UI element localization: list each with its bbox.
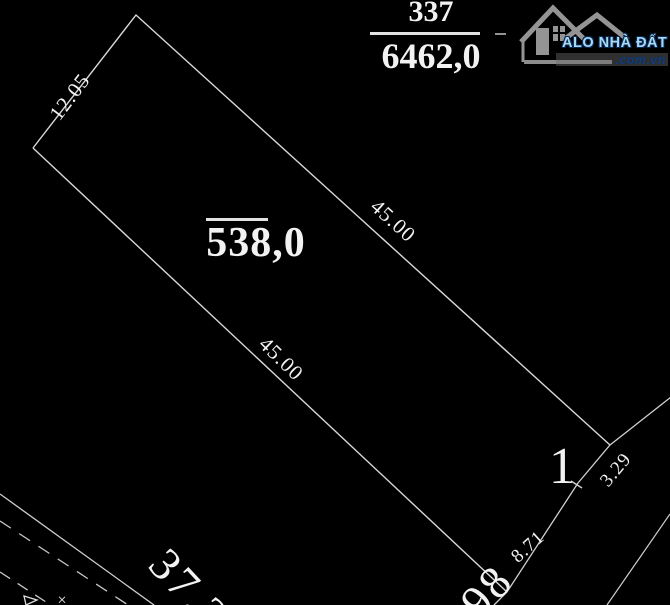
cadastral-parcel-map: 337 6462,0 538,0 12.05 45.00 45.00 3.29 … [0, 0, 670, 605]
plot-total-area-label: 6462,0 [382, 38, 481, 74]
plot-number-label: 337 [409, 0, 454, 27]
parcel-left-boundary [33, 148, 507, 592]
watermark-brand-text: ALO NHÀ ĐẤT [562, 35, 670, 51]
fraction-bar [370, 32, 480, 35]
road-edge-front [494, 397, 670, 605]
road-centerline-dashed-2 [0, 572, 46, 602]
road-edge-bottom-left [0, 494, 154, 605]
parcel-area-label: 538,0 [206, 222, 306, 264]
road-edge-far [607, 514, 670, 605]
adjacent-plot-number: 1 [549, 441, 575, 493]
parcel-boundary-drawing [0, 0, 670, 605]
survey-cross-marker: × [57, 593, 66, 605]
survey-triangle-marker [24, 596, 37, 605]
watermark-domain-text: .com.vn [604, 53, 666, 67]
